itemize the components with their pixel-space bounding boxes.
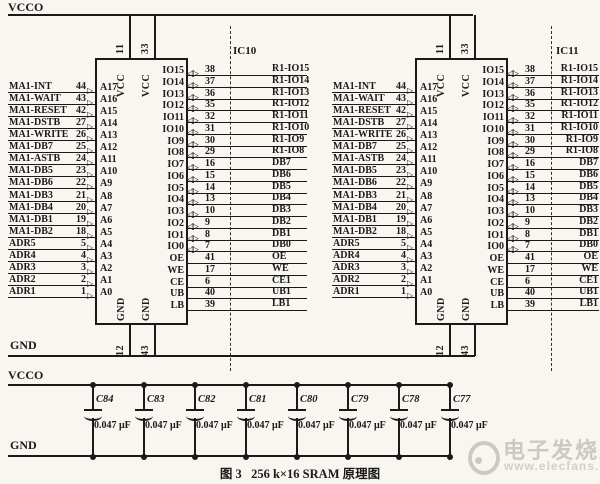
net-label: OE xyxy=(539,251,598,262)
net-label: ADR3 xyxy=(9,262,36,273)
pin-name: IO12 xyxy=(460,100,504,111)
power-pin-wire xyxy=(449,325,451,356)
pin-name: UB xyxy=(460,288,504,299)
capacitor-ref: C78 xyxy=(402,394,420,405)
pin-name: OE xyxy=(460,253,504,264)
pin-number: 33 xyxy=(460,26,472,54)
net-label: MA1-WAIT xyxy=(9,93,61,104)
pin-row-left: MA1-WAIT43 xyxy=(8,92,95,105)
capacitor-wire xyxy=(398,385,400,409)
pin-number: 43 xyxy=(396,93,406,104)
pin-name: A17 xyxy=(420,82,437,93)
net-label: R1-IO9 xyxy=(539,134,598,145)
pin-number: 31 xyxy=(205,123,215,134)
pin-name: A11 xyxy=(100,154,117,165)
net-label: UB1 xyxy=(539,286,598,297)
pin-name: IO14 xyxy=(460,77,504,88)
capacitor-wire xyxy=(245,385,247,409)
pin-name: IO3 xyxy=(460,206,504,217)
pin-name: IO15 xyxy=(460,65,504,76)
pin-number: 42 xyxy=(396,105,406,116)
net-label: MA1-ASTB xyxy=(333,153,384,164)
pin-name: A6 xyxy=(420,215,432,226)
net-label: MA1-WRITE xyxy=(333,129,392,140)
pin-number: 35 xyxy=(525,99,535,110)
pin-number: 19 xyxy=(396,214,406,225)
pin-name: IO14 xyxy=(140,77,184,88)
pin-name: A17 xyxy=(100,82,117,93)
pin-number: 43 xyxy=(140,330,152,356)
net-label: CE1 xyxy=(539,275,598,286)
pin-number: 41 xyxy=(205,252,215,263)
pin-number: 14 xyxy=(525,182,535,193)
pin-number: 42 xyxy=(76,105,86,116)
net-label: ADR4 xyxy=(9,250,36,261)
pin-row-left: ADR22 xyxy=(8,273,95,286)
net-label: DB6 xyxy=(539,169,598,180)
pin-number: 16 xyxy=(205,158,215,169)
net-label: DB4 xyxy=(272,192,291,203)
capacitor-wire xyxy=(296,385,298,409)
pin-row-left: MA1-DSTB27 xyxy=(332,116,415,129)
pin-name: A8 xyxy=(420,191,432,202)
pin-number: 1 xyxy=(81,286,86,297)
pin-number: 44 xyxy=(396,81,406,92)
pin-number: 38 xyxy=(525,64,535,75)
pin-number: 8 xyxy=(525,229,530,240)
pin-name: IO3 xyxy=(140,206,184,217)
net-label: MA1-DB1 xyxy=(9,214,53,225)
net-label: DB2 xyxy=(272,216,291,227)
pin-name: CE xyxy=(460,277,504,288)
pin-name: A1 xyxy=(100,275,112,286)
net-label: ADR3 xyxy=(333,262,360,273)
vcco-bottom-rail xyxy=(8,384,452,386)
pin-name: LB xyxy=(140,300,184,311)
pin-name: IO5 xyxy=(140,183,184,194)
pin-number: 18 xyxy=(396,226,406,237)
pin-number: 12 xyxy=(115,330,127,356)
pin-number: 26 xyxy=(76,129,86,140)
power-pin-wire xyxy=(449,15,451,58)
pin-name: A16 xyxy=(420,94,437,105)
junction-dot xyxy=(192,382,198,388)
capacitor-value: 0.047 μF xyxy=(451,420,488,431)
net-label: R1-IO15 xyxy=(539,63,598,74)
capacitor-wire xyxy=(194,385,196,409)
pin-name: IO12 xyxy=(140,100,184,111)
net-label: WE xyxy=(272,263,289,274)
pin-name: A4 xyxy=(420,239,432,250)
net-label: ADR4 xyxy=(333,250,360,261)
net-label: UB1 xyxy=(272,286,291,297)
gnd-bottom-rail xyxy=(8,455,452,457)
pin-number: 39 xyxy=(205,299,215,310)
pin-name: LB xyxy=(460,300,504,311)
net-label: CE1 xyxy=(272,275,291,286)
pin-name: IO5 xyxy=(460,183,504,194)
pin-name: A7 xyxy=(420,203,432,214)
pin-number: 32 xyxy=(525,111,535,122)
pin-number: 30 xyxy=(205,135,215,146)
net-label: MA1-ASTB xyxy=(9,153,60,164)
pin-row-left: MA1-RESET42 xyxy=(332,104,415,117)
pin-name: A0 xyxy=(420,287,432,298)
pin-number: 36 xyxy=(205,88,215,99)
pin-number: 2 xyxy=(401,274,406,285)
pin-row-left: ADR44 xyxy=(332,249,415,262)
pin-row-left: ADR33 xyxy=(8,261,95,274)
net-label: MA1-INT xyxy=(333,81,376,92)
pin-name: IO8 xyxy=(140,147,184,158)
pin-name: IO11 xyxy=(140,112,184,123)
pin-number: 5 xyxy=(401,238,406,249)
pin-number: 39 xyxy=(525,299,535,310)
capacitor-wire xyxy=(347,385,349,409)
net-label: MA1-WAIT xyxy=(333,93,385,104)
net-label: ADR1 xyxy=(9,286,36,297)
net-label: MA1-DB2 xyxy=(9,226,53,237)
capacitor-value: 0.047 μF xyxy=(247,420,284,431)
net-label: R1-IO11 xyxy=(539,110,598,121)
pin-name: A3 xyxy=(420,251,432,262)
pin-name: IO1 xyxy=(140,230,184,241)
capacitor-ref: C77 xyxy=(453,394,471,405)
net-label: R1-IO10 xyxy=(539,122,598,133)
pin-name: GND xyxy=(116,285,128,321)
pin-row-left: MA1-RESET42 xyxy=(8,104,95,117)
capacitor-value: 0.047 μF xyxy=(94,420,131,431)
pin-number: 17 xyxy=(525,264,535,275)
pin-number: 3 xyxy=(81,262,86,273)
pin-number: 14 xyxy=(205,182,215,193)
schematic-page: VCCO GND VCCO GND IC1011VCC33VCC12GND43G… xyxy=(0,0,600,484)
pin-name: A5 xyxy=(420,227,432,238)
net-label: DB1 xyxy=(272,228,291,239)
net-label: MA1-DB5 xyxy=(9,165,53,176)
net-label: MA1-RESET xyxy=(9,105,67,116)
pin-name: IO1 xyxy=(460,230,504,241)
capacitor-ref: C83 xyxy=(147,394,165,405)
power-pin-wire xyxy=(474,325,476,356)
pin-number: 9 xyxy=(205,217,210,228)
pin-number: 43 xyxy=(76,93,86,104)
pin-number: 7 xyxy=(205,240,210,251)
pin-row-left: MA1-DB622 xyxy=(8,176,95,189)
pin-row-left: MA1-DB119 xyxy=(8,213,95,226)
pin-number: 11 xyxy=(435,26,447,54)
net-label: MA1-DB3 xyxy=(333,190,377,201)
pin-name: WE xyxy=(460,265,504,276)
pin-number: 25 xyxy=(76,141,86,152)
capacitor-value: 0.047 μF xyxy=(349,420,386,431)
pin-name: IO13 xyxy=(140,89,184,100)
pin-number: 4 xyxy=(81,250,86,261)
junction-dot xyxy=(192,454,198,460)
pin-number: 10 xyxy=(525,205,535,216)
pin-name: A8 xyxy=(100,191,112,202)
pin-name: IO0 xyxy=(140,241,184,252)
pin-name: A12 xyxy=(420,142,437,153)
net-label: ADR2 xyxy=(333,274,360,285)
pin-row-left: MA1-DB420 xyxy=(8,201,95,214)
pin-number: 9 xyxy=(525,217,530,228)
pin-name: IO7 xyxy=(140,159,184,170)
net-label: DB0 xyxy=(539,239,598,250)
junction-dot xyxy=(90,382,96,388)
pin-number: 30 xyxy=(525,135,535,146)
net-label: OE xyxy=(272,251,286,262)
pin-row-left: MA1-ASTB24 xyxy=(8,152,95,165)
input-arrow-icon: ▷ xyxy=(87,291,93,300)
capacitor-ref: C79 xyxy=(351,394,369,405)
net-label: MA1-DB1 xyxy=(333,214,377,225)
junction-dot xyxy=(294,454,300,460)
net-label: DB6 xyxy=(272,169,291,180)
capacitor-wire xyxy=(143,385,145,409)
pin-name: A6 xyxy=(100,215,112,226)
pin-number: 7 xyxy=(525,240,530,251)
pin-number: 37 xyxy=(525,76,535,87)
pin-name: A15 xyxy=(420,106,437,117)
capacitor-ref: C84 xyxy=(96,394,114,405)
net-label: MA1-DSTB xyxy=(9,117,60,128)
pin-number: 15 xyxy=(525,170,535,181)
pin-number: 21 xyxy=(76,190,86,201)
pin-name: UB xyxy=(140,288,184,299)
pin-number: 27 xyxy=(76,117,86,128)
net-label: R1-IO8 xyxy=(272,145,304,156)
vcco-top-rail-label: VCCO xyxy=(8,1,43,14)
net-label: DB5 xyxy=(272,181,291,192)
pin-name: IO8 xyxy=(460,147,504,158)
net-label: DB5 xyxy=(539,181,598,192)
pin-name: IO2 xyxy=(460,218,504,229)
pin-number: 4 xyxy=(401,250,406,261)
pin-number: 26 xyxy=(396,129,406,140)
pin-row-left: ADR33 xyxy=(332,261,415,274)
pin-number: 8 xyxy=(205,229,210,240)
net-label: MA1-DB5 xyxy=(333,165,377,176)
pin-row-left: MA1-INT44 xyxy=(8,80,95,93)
junction-dot xyxy=(447,382,453,388)
net-label: DB4 xyxy=(539,192,598,203)
capacitor-value: 0.047 μF xyxy=(298,420,335,431)
pin-row-left: MA1-WAIT43 xyxy=(332,92,415,105)
pin-number: 19 xyxy=(76,214,86,225)
net-label: DB3 xyxy=(272,204,291,215)
junction-dot xyxy=(90,454,96,460)
pin-number: 2 xyxy=(81,274,86,285)
power-pin-wire xyxy=(129,325,131,356)
pin-row-left: MA1-DB218 xyxy=(8,225,95,238)
pin-name: IO6 xyxy=(460,171,504,182)
net-label: R1-IO10 xyxy=(272,122,309,133)
pin-row-left: ADR55 xyxy=(332,237,415,250)
pin-row-left: MA1-DB321 xyxy=(332,189,415,202)
net-label: LB1 xyxy=(539,298,598,309)
junction-dot xyxy=(141,382,147,388)
pin-name: A14 xyxy=(420,118,437,129)
junction-dot xyxy=(141,454,147,460)
pin-name: A16 xyxy=(100,94,117,105)
capacitor-wire xyxy=(449,385,451,409)
pin-name: IO9 xyxy=(140,136,184,147)
net-label: MA1-DB7 xyxy=(333,141,377,152)
pin-number: 44 xyxy=(76,81,86,92)
gnd-top-rail xyxy=(8,355,475,357)
pin-number: 5 xyxy=(81,238,86,249)
net-label: R1-IO13 xyxy=(539,87,598,98)
net-label: MA1-RESET xyxy=(333,105,391,116)
pin-row-left: MA1-DB420 xyxy=(332,201,415,214)
pin-number: 25 xyxy=(396,141,406,152)
pin-number: 18 xyxy=(76,226,86,237)
pin-number: 40 xyxy=(205,287,215,298)
pin-name: A9 xyxy=(100,178,112,189)
pin-row-left: MA1-DB725 xyxy=(332,140,415,153)
capacitor-ref: C81 xyxy=(249,394,267,405)
pin-row-left: ADR11 xyxy=(8,285,95,298)
pin-row-left: ADR55 xyxy=(8,237,95,250)
pin-name: A10 xyxy=(100,166,117,177)
pin-number: 24 xyxy=(396,153,406,164)
pin-name: IO10 xyxy=(460,124,504,135)
net-label: MA1-DB3 xyxy=(9,190,53,201)
figure-caption: 图 3 256 k×16 SRAM 原理图 xyxy=(0,463,600,482)
pin-number: 24 xyxy=(76,153,86,164)
net-label: LB1 xyxy=(272,298,290,309)
pin-name: A3 xyxy=(100,251,112,262)
pin-number: 3 xyxy=(401,262,406,273)
pin-name: A14 xyxy=(100,118,117,129)
pin-number: 36 xyxy=(525,88,535,99)
pin-name: A1 xyxy=(420,275,432,286)
pin-number: 23 xyxy=(396,165,406,176)
gnd-top-rail-label: GND xyxy=(10,339,37,352)
input-arrow-icon: ▷ xyxy=(407,291,413,300)
net-label: MA1-DSTB xyxy=(333,117,384,128)
pin-name: A4 xyxy=(100,239,112,250)
pin-row-left: MA1-DB523 xyxy=(8,164,95,177)
pin-row-left: ADR22 xyxy=(332,273,415,286)
net-label: R1-IO8 xyxy=(539,145,598,156)
pin-name: A7 xyxy=(100,203,112,214)
net-label: MA1-DB6 xyxy=(333,177,377,188)
pin-row-left: ADR11 xyxy=(332,285,415,298)
net-label: MA1-DB4 xyxy=(9,202,53,213)
pin-name: IO7 xyxy=(460,159,504,170)
pin-name: WE xyxy=(140,265,184,276)
pin-number: 13 xyxy=(525,193,535,204)
net-label: ADR2 xyxy=(9,274,36,285)
pin-name: A5 xyxy=(100,227,112,238)
net-label: MA1-DB7 xyxy=(9,141,53,152)
pin-name: A2 xyxy=(420,263,432,274)
junction-dot xyxy=(447,454,453,460)
net-label: ADR5 xyxy=(333,238,360,249)
pin-number: 20 xyxy=(76,202,86,213)
pin-row-left: MA1-ASTB24 xyxy=(332,152,415,165)
junction-dot xyxy=(396,382,402,388)
pin-name: VCC xyxy=(436,63,448,97)
pin-number: 16 xyxy=(525,158,535,169)
pin-number: 37 xyxy=(205,76,215,87)
net-label: MA1-INT xyxy=(9,81,52,92)
pin-number: 15 xyxy=(205,170,215,181)
pin-row-left: MA1-DB218 xyxy=(332,225,415,238)
pin-name: IO0 xyxy=(460,241,504,252)
net-label: R1-IO13 xyxy=(272,87,309,98)
pin-number: 43 xyxy=(460,330,472,356)
pin-number: 21 xyxy=(396,190,406,201)
pin-row-left: MA1-DSTB27 xyxy=(8,116,95,129)
pin-number: 38 xyxy=(205,64,215,75)
net-label: R1-IO9 xyxy=(272,134,304,145)
pin-number: 22 xyxy=(396,177,406,188)
capacitor-ref: C80 xyxy=(300,394,318,405)
pin-name: IO4 xyxy=(460,194,504,205)
pin-row-left: MA1-WRITE26 xyxy=(332,128,415,141)
net-label: R1-IO14 xyxy=(539,75,598,86)
pin-name: IO9 xyxy=(460,136,504,147)
junction-dot xyxy=(243,382,249,388)
pin-name: A12 xyxy=(100,142,117,153)
pin-name: IO10 xyxy=(140,124,184,135)
net-label: R1-IO14 xyxy=(272,75,309,86)
pin-row-left: MA1-WRITE26 xyxy=(8,128,95,141)
pin-row-left: ADR44 xyxy=(8,249,95,262)
pin-number: 1 xyxy=(401,286,406,297)
pin-name: CE xyxy=(140,277,184,288)
pin-number: 41 xyxy=(525,252,535,263)
pin-number: 12 xyxy=(435,330,447,356)
pin-row-left: MA1-DB119 xyxy=(332,213,415,226)
capacitor-value: 0.047 μF xyxy=(196,420,233,431)
net-label: R1-IO11 xyxy=(272,110,309,121)
capacitor-wire xyxy=(92,385,94,409)
junction-dot xyxy=(396,454,402,460)
pin-name: IO6 xyxy=(140,171,184,182)
pin-name: GND xyxy=(436,285,448,321)
net-label: MA1-DB4 xyxy=(333,202,377,213)
pin-number: 10 xyxy=(205,205,215,216)
junction-dot xyxy=(345,454,351,460)
pin-number: 27 xyxy=(396,117,406,128)
watermark-brand: 电子发烧友 xyxy=(503,433,600,465)
pin-row-left: MA1-DB321 xyxy=(8,189,95,202)
net-label: R1-IO12 xyxy=(272,98,309,109)
net-label: ADR1 xyxy=(333,286,360,297)
pin-name: A10 xyxy=(420,166,437,177)
pin-name: OE xyxy=(140,253,184,264)
pin-number: 29 xyxy=(525,146,535,157)
pin-number: 35 xyxy=(205,99,215,110)
pin-number: 22 xyxy=(76,177,86,188)
junction-dot xyxy=(345,382,351,388)
pin-name: IO15 xyxy=(140,65,184,76)
ic-designator: IC11 xyxy=(556,45,579,57)
pin-name: A0 xyxy=(100,287,112,298)
net-label: DB7 xyxy=(539,157,598,168)
pin-name: A15 xyxy=(100,106,117,117)
junction-dot xyxy=(243,454,249,460)
vcco-top-rail xyxy=(8,14,473,16)
pin-row-left: MA1-DB622 xyxy=(332,176,415,189)
pin-number: 31 xyxy=(525,123,535,134)
pin-name: VCC xyxy=(116,63,128,97)
vcco-bottom-rail-label: VCCO xyxy=(8,369,43,382)
